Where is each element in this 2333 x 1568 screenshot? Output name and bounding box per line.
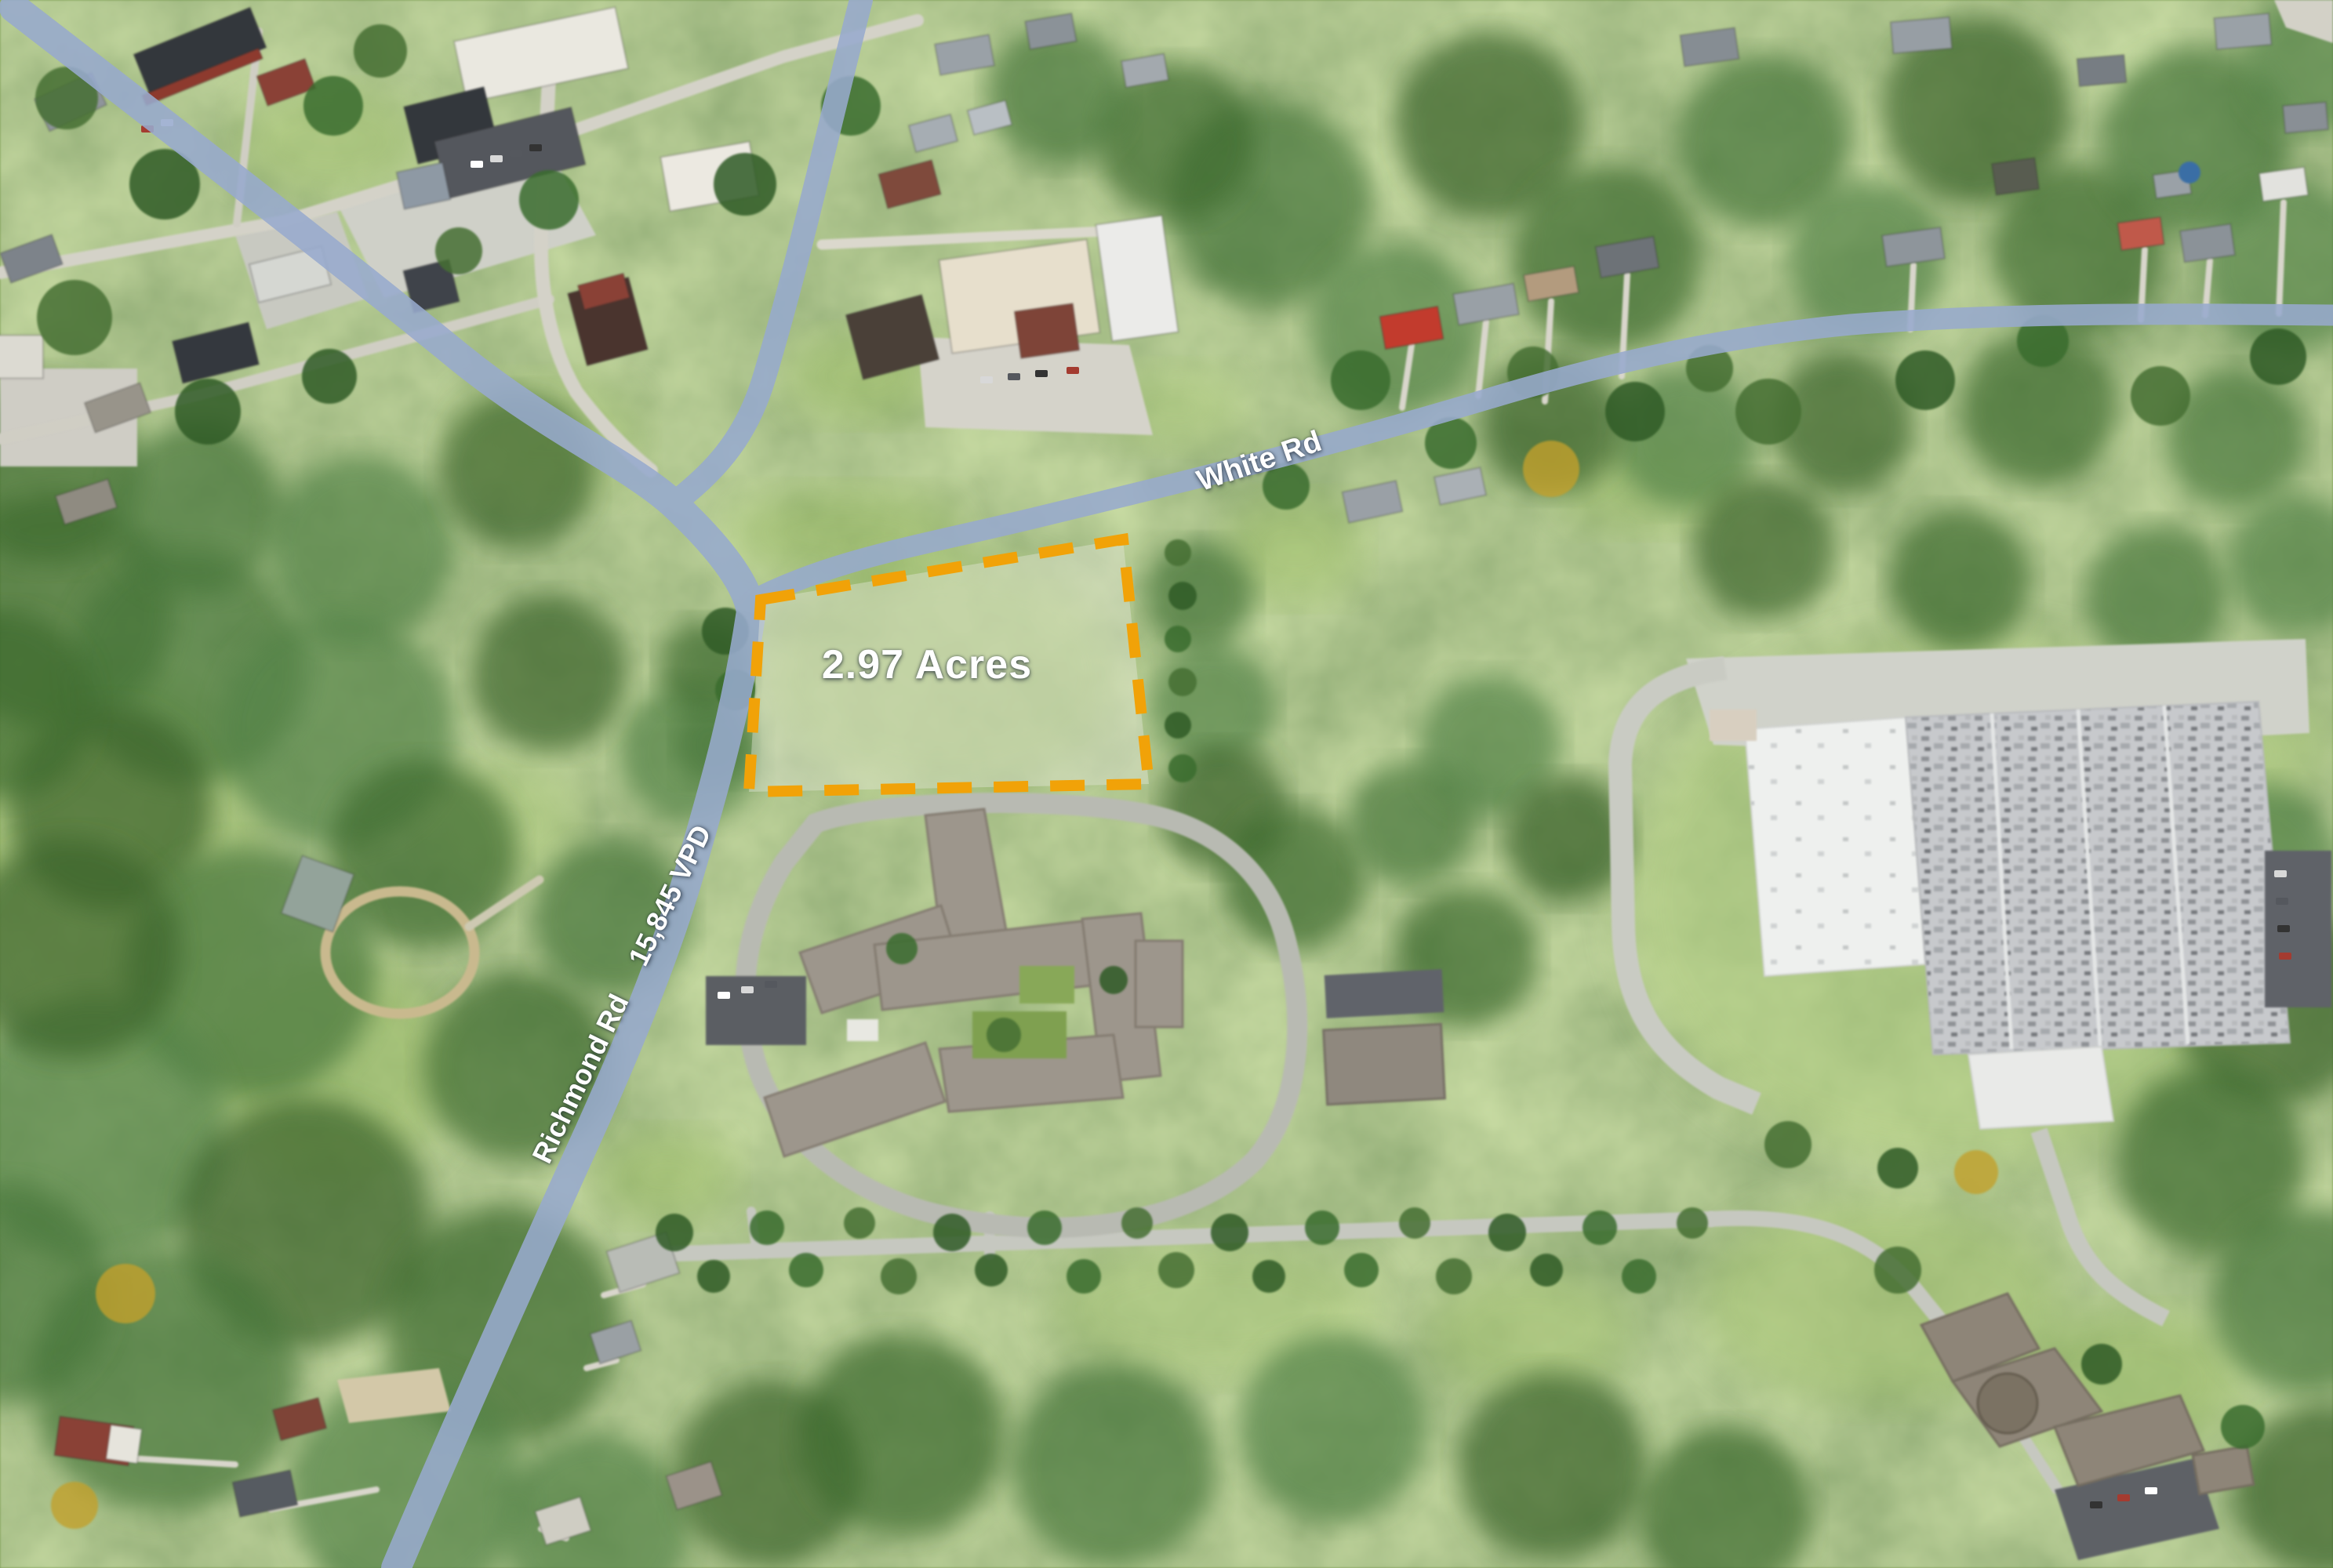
- parked-car: [2090, 1501, 2102, 1508]
- tree: [519, 170, 579, 230]
- tree: [1877, 1148, 1918, 1189]
- tree: [1165, 539, 1191, 566]
- parked-car: [490, 155, 503, 162]
- house-roof: [2077, 55, 2127, 86]
- tree: [750, 1210, 784, 1245]
- parked-car: [471, 161, 483, 168]
- tree: [1735, 379, 1801, 445]
- tree: [1399, 1207, 1430, 1239]
- aerial-basemap: [0, 0, 2333, 1568]
- parked-car: [529, 144, 542, 151]
- parked-car: [1035, 370, 1048, 377]
- tree: [2131, 366, 2190, 426]
- tree: [1027, 1210, 1062, 1245]
- forest-blob: [1145, 541, 1255, 651]
- tree: [881, 1258, 917, 1294]
- autumn-tree: [96, 1264, 155, 1323]
- tree: [1344, 1253, 1379, 1287]
- tree: [933, 1214, 971, 1251]
- house-roof: [2283, 102, 2328, 133]
- house-roof: [106, 1425, 142, 1463]
- tree: [1168, 668, 1197, 696]
- tree: [1168, 754, 1197, 782]
- tree: [1121, 1207, 1153, 1239]
- forest-blob: [1459, 1372, 1647, 1560]
- tree: [656, 1214, 693, 1251]
- tree: [1067, 1259, 1101, 1294]
- tree: [1530, 1254, 1563, 1287]
- tree: [354, 24, 407, 78]
- parked-car: [2276, 898, 2288, 905]
- parked-car: [2145, 1487, 2157, 1494]
- parked-car: [765, 981, 777, 988]
- house-roof: [2214, 13, 2271, 49]
- tree: [2250, 328, 2306, 385]
- tree: [1331, 350, 1390, 410]
- forest-blob: [267, 455, 455, 643]
- forest-blob: [1694, 478, 1835, 619]
- tree: [1874, 1247, 1921, 1294]
- parked-car: [718, 992, 730, 999]
- autumn-tree: [1523, 441, 1579, 497]
- parked-car: [2117, 1494, 2130, 1501]
- tree: [1764, 1121, 1812, 1168]
- tree: [435, 227, 482, 274]
- tree: [2081, 1344, 2122, 1385]
- tree: [2221, 1405, 2265, 1449]
- parcel-acreage-label: 2.97 Acres: [822, 641, 1032, 688]
- parked-car: [510, 150, 522, 157]
- tree: [789, 1253, 823, 1287]
- tree: [1488, 1214, 1526, 1251]
- tree: [714, 153, 776, 216]
- parked-car: [741, 986, 754, 993]
- forest-blob: [1012, 1364, 1216, 1568]
- tree: [1168, 582, 1197, 610]
- tree: [1165, 712, 1191, 739]
- backyard-pool: [2179, 162, 2200, 183]
- parked-car: [2274, 870, 2287, 877]
- tree: [1677, 1207, 1708, 1239]
- autumn-tree: [51, 1482, 98, 1529]
- forest-blob: [1890, 510, 2031, 651]
- tree: [697, 1260, 730, 1293]
- tree: [1252, 1260, 1285, 1293]
- tree: [886, 933, 918, 964]
- tree: [302, 349, 357, 404]
- tree: [987, 1018, 1021, 1052]
- tree: [844, 1207, 875, 1239]
- aerial-site-map: 2.97 Acres White Rd Richmond Rd15,845 VP…: [0, 0, 2333, 1568]
- house-roof: [2180, 224, 2235, 263]
- parked-car: [1008, 373, 1020, 380]
- tree: [175, 379, 241, 445]
- tree: [1583, 1210, 1617, 1245]
- parked-car: [1067, 367, 1079, 374]
- tree: [1895, 350, 1955, 410]
- house-roof: [1681, 27, 1739, 66]
- tree: [1211, 1214, 1248, 1251]
- forest-blob: [1239, 1333, 1427, 1521]
- tree: [1305, 1210, 1339, 1245]
- parked-car: [2279, 953, 2291, 960]
- house-roof: [1015, 303, 1080, 358]
- tree: [1099, 966, 1128, 994]
- house-roof: [2259, 167, 2308, 201]
- tree: [975, 1254, 1008, 1287]
- lawn-patch: [596, 1129, 737, 1223]
- house-roof: [2117, 217, 2164, 250]
- house-roof: [1992, 158, 2039, 194]
- parked-car: [980, 376, 993, 383]
- tree: [1605, 382, 1665, 441]
- tree: [1158, 1252, 1194, 1288]
- house-roof: [0, 336, 43, 379]
- autumn-tree: [1954, 1150, 1998, 1194]
- parked-car: [2277, 925, 2290, 932]
- tree: [1165, 626, 1191, 652]
- house-roof: [1891, 17, 1952, 53]
- forest-blob: [800, 1333, 1004, 1537]
- tree: [37, 280, 112, 355]
- forest-blob: [471, 596, 627, 753]
- tree: [1622, 1259, 1656, 1294]
- tree: [1436, 1258, 1472, 1294]
- tree: [303, 76, 363, 136]
